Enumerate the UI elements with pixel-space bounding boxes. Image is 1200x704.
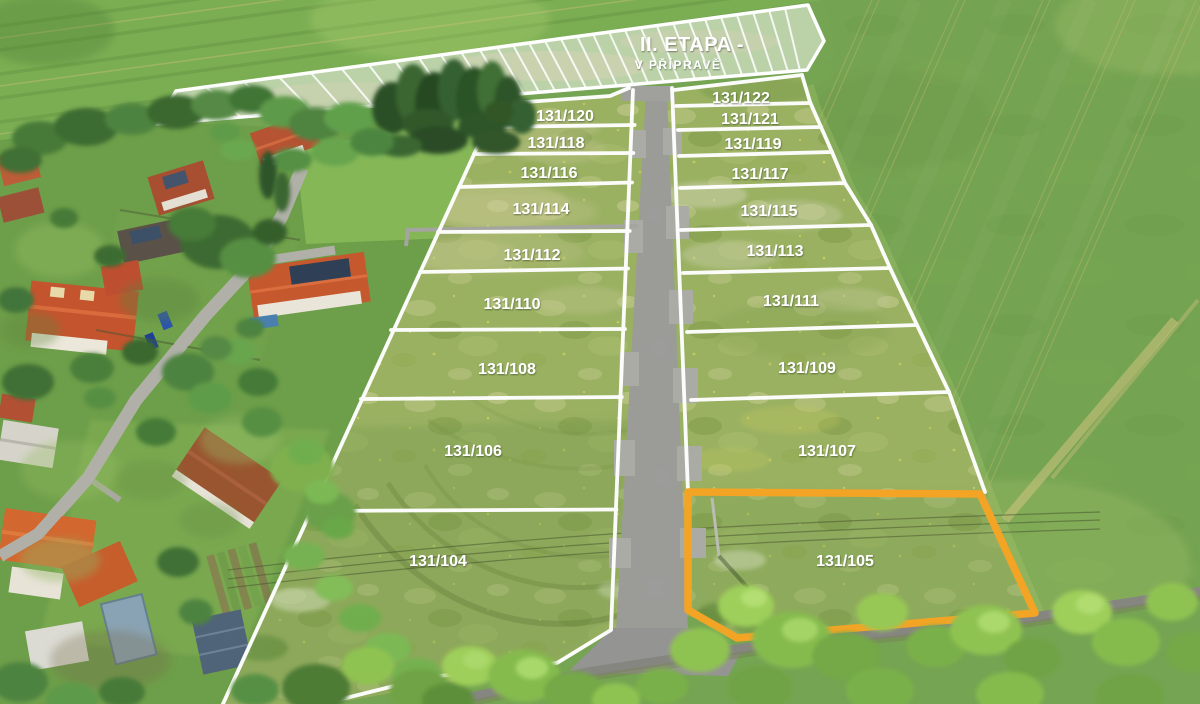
svg-text:131/106: 131/106 <box>444 443 502 460</box>
svg-text:131/116: 131/116 <box>521 165 578 182</box>
svg-text:131/122: 131/122 <box>712 90 770 107</box>
svg-text:V PŘÍPRAVĚ: V PŘÍPRAVĚ <box>635 57 722 72</box>
svg-text:131/117: 131/117 <box>732 166 789 183</box>
svg-text:131/108: 131/108 <box>478 361 536 378</box>
svg-text:131/110: 131/110 <box>484 296 541 313</box>
svg-text:131/105: 131/105 <box>816 553 874 570</box>
svg-text:131/111: 131/111 <box>763 293 819 310</box>
svg-text:131/115: 131/115 <box>741 203 798 220</box>
svg-text:II. ETAPA -: II. ETAPA - <box>640 34 744 56</box>
svg-text:131/113: 131/113 <box>747 243 804 260</box>
svg-text:131/120: 131/120 <box>536 108 594 125</box>
svg-text:131/118: 131/118 <box>528 135 585 152</box>
svg-text:131/121: 131/121 <box>721 111 779 128</box>
svg-text:131/107: 131/107 <box>798 443 856 460</box>
svg-text:131/114: 131/114 <box>513 201 570 218</box>
svg-text:131/109: 131/109 <box>778 360 836 377</box>
svg-text:131/104: 131/104 <box>409 553 467 570</box>
svg-text:131/112: 131/112 <box>504 247 561 264</box>
svg-text:131/119: 131/119 <box>725 136 782 153</box>
